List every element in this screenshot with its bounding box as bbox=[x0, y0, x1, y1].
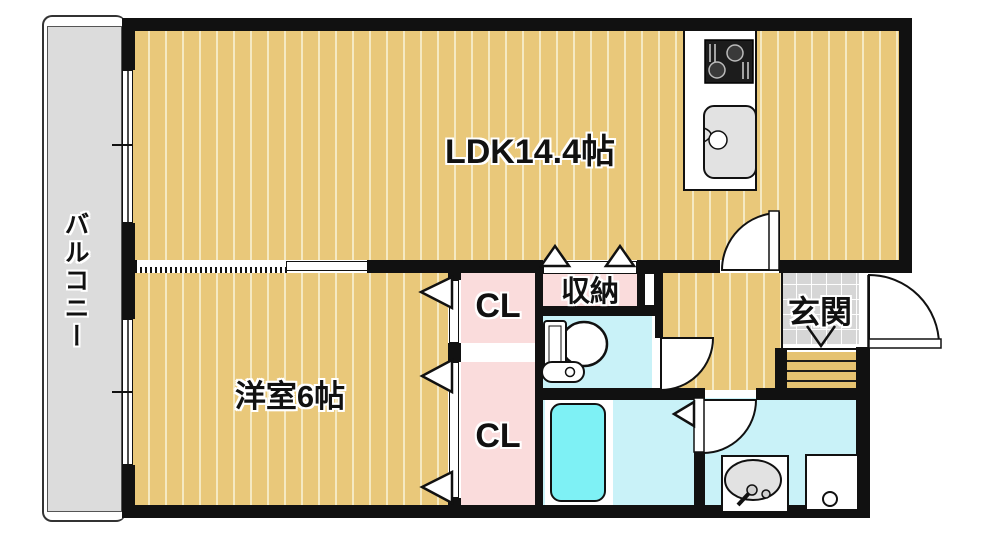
storage-side-panel bbox=[644, 273, 655, 306]
sliding-door-panel bbox=[286, 261, 368, 271]
wall-bath-divider bbox=[694, 450, 705, 508]
ldk-label: LDK14.4帖 bbox=[380, 126, 680, 170]
kitchen-counter bbox=[683, 31, 757, 191]
washroom bbox=[700, 398, 856, 505]
western-room-label: 洋室6帖 bbox=[160, 372, 420, 414]
ldk-window bbox=[122, 70, 133, 223]
wall-step-left bbox=[775, 348, 787, 390]
entrance-step bbox=[786, 352, 859, 390]
sliding-door-track bbox=[140, 267, 288, 273]
wall-bath-top-a bbox=[535, 388, 705, 400]
wall-cl-2 bbox=[448, 343, 461, 362]
entrance-step-line bbox=[783, 348, 867, 350]
wall-left-1 bbox=[122, 18, 135, 70]
toilet-room bbox=[543, 316, 652, 388]
entrance-door-arc bbox=[869, 275, 939, 345]
hallway-floor bbox=[663, 273, 781, 390]
closet-lower-label: CL bbox=[458, 417, 538, 455]
closet-upper-label: CL bbox=[458, 287, 538, 325]
wall-hallway-left bbox=[655, 273, 663, 338]
wall-right-upper bbox=[899, 18, 912, 272]
storage-label: 収納 bbox=[538, 272, 642, 306]
wall-cl-1 bbox=[448, 260, 461, 280]
floorplan-canvas: LDK14.4帖 洋室6帖 CL CL 収納 玄関 バルコニー bbox=[0, 0, 987, 541]
wall-mid-a bbox=[122, 260, 137, 273]
wall-mid-d bbox=[779, 260, 912, 273]
wall-top bbox=[122, 18, 912, 31]
balcony-label: バルコニー bbox=[56, 196, 94, 366]
western-room-window bbox=[122, 319, 133, 465]
wall-right-lower bbox=[856, 347, 870, 518]
wall-bottom bbox=[122, 505, 868, 518]
bathtub-surround bbox=[545, 396, 613, 507]
wall-bath-top-b bbox=[756, 388, 868, 400]
entrance-label: 玄関 bbox=[768, 291, 872, 329]
entrance-door-leaf bbox=[869, 339, 941, 348]
wall-mid-c bbox=[637, 260, 720, 273]
